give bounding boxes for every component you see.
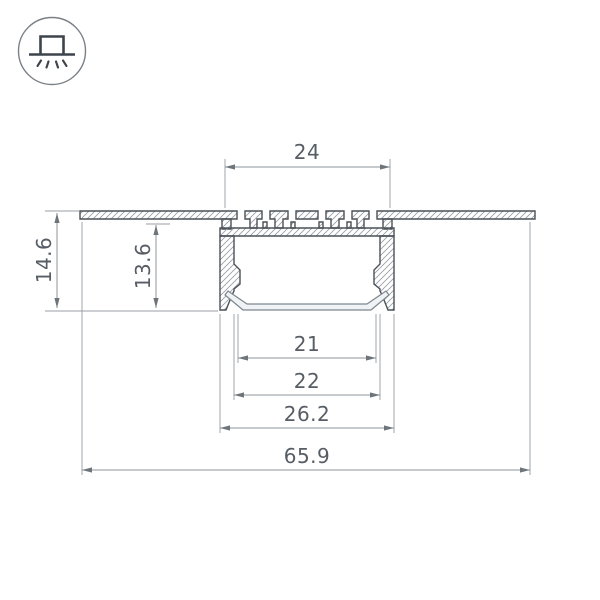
arrowhead (54, 213, 59, 223)
dimension-262-label: 26.2 (284, 402, 331, 426)
dimension-136-label: 13.6 (131, 243, 155, 290)
slot-nub-4 (347, 222, 351, 228)
arrowhead (366, 355, 376, 360)
icon-circle (19, 18, 86, 85)
diffuser (225, 291, 389, 310)
top-web (220, 228, 394, 236)
flange-center (296, 211, 318, 219)
arrowhead (153, 298, 158, 308)
technical-drawing: 24 14.6 13.6 21 22 26.2 65.9 (0, 0, 600, 600)
slot-nub-2 (291, 222, 295, 228)
arrowhead (384, 425, 394, 430)
dimension-24-label: 24 (294, 140, 320, 164)
flange-right (377, 211, 535, 219)
arrowhead (54, 298, 59, 308)
dimension-146-label: 14.6 (32, 237, 56, 284)
arrowhead (370, 392, 380, 397)
slot-nub-3 (319, 222, 323, 228)
stud-left (270, 211, 288, 228)
stud-right (326, 211, 344, 228)
flange-left (80, 211, 237, 219)
slot-nub-1 (263, 222, 267, 228)
arrowhead (380, 164, 390, 169)
dimension-659-label: 65.9 (284, 444, 331, 468)
recessed-mount-icon (19, 18, 86, 85)
drawing-page: 24 14.6 13.6 21 22 26.2 65.9 (0, 0, 600, 600)
arrowhead (153, 225, 158, 235)
clamp-right (352, 211, 369, 228)
icon-light-rays (38, 61, 67, 68)
dimension-22-label: 22 (294, 369, 320, 393)
arrowhead (520, 467, 530, 472)
arrowhead (225, 164, 235, 169)
arrowhead (220, 425, 230, 430)
dimension-21-label: 21 (294, 332, 320, 356)
arrowhead (238, 355, 248, 360)
icon-profile-box (41, 37, 64, 55)
arrowhead (234, 392, 244, 397)
clamp-left (245, 211, 262, 228)
arrowhead (82, 467, 92, 472)
